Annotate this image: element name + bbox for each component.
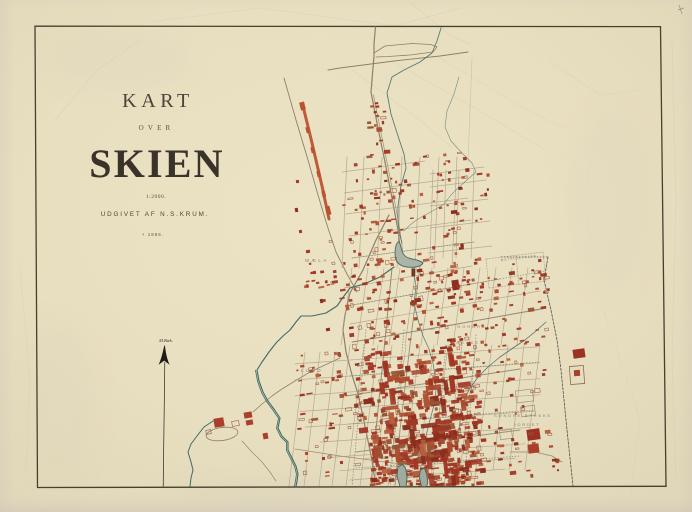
svg-text:NORDRE: NORDRE (457, 324, 486, 329)
svg-text:JORDET: JORDET (514, 422, 541, 427)
svg-text:UDGIVET AF N.S.KRUM.: UDGIVET AF N.S.KRUM. (101, 211, 210, 218)
svg-text:KART: KART (122, 90, 194, 112)
svg-text:SØNDRE BREKKE: SØNDRE BREKKE (494, 413, 552, 418)
svg-text:SKIEN: SKIEN (89, 141, 225, 186)
svg-text:1:2000.: 1:2000. (146, 194, 166, 200)
svg-text:OVER: OVER (139, 124, 175, 132)
svg-text:LUND: LUND (301, 368, 323, 373)
svg-text:M.Bæk.: M.Bæk. (158, 338, 173, 343)
svg-text:MÆLA: MÆLA (305, 258, 329, 263)
svg-text:+ 1885.: + 1885. (142, 232, 164, 237)
svg-text:BREKKE: BREKKE (452, 340, 480, 345)
